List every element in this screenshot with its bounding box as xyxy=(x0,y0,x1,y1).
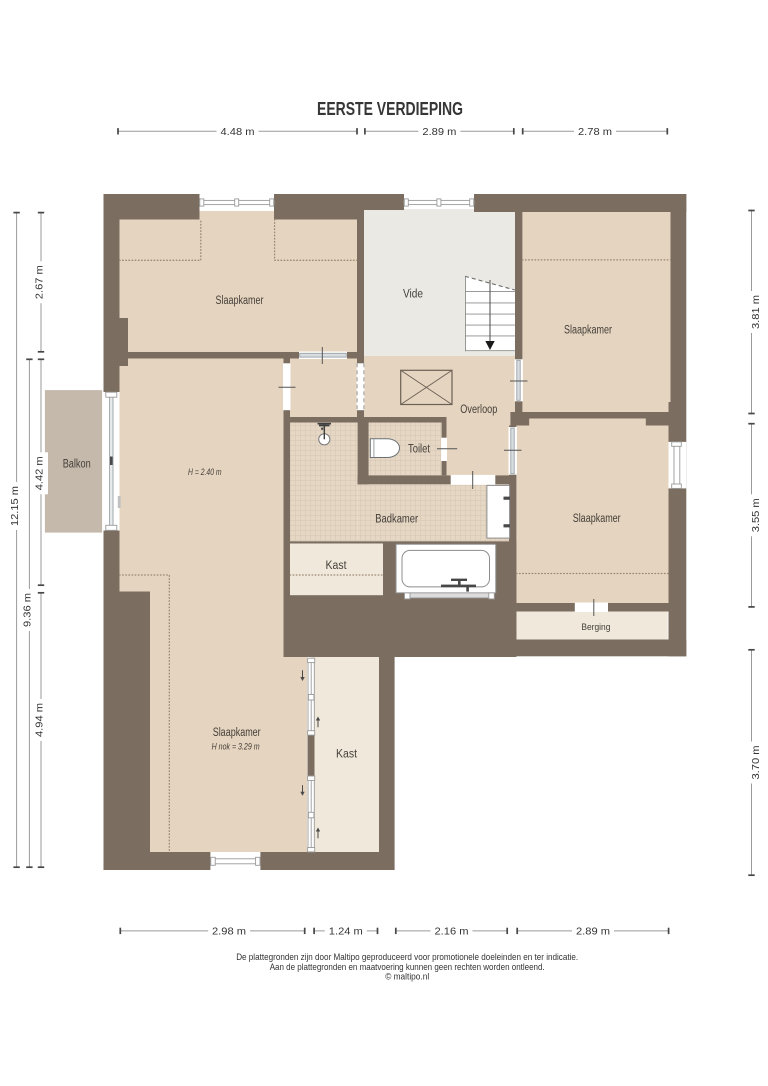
svg-text:2.16 m: 2.16 m xyxy=(435,926,469,938)
svg-text:3.81 m: 3.81 m xyxy=(750,295,762,329)
svg-text:2.98 m: 2.98 m xyxy=(212,926,246,938)
svg-text:1.24 m: 1.24 m xyxy=(329,926,363,938)
svg-text:Badkamer: Badkamer xyxy=(375,514,418,526)
svg-text:2.67 m: 2.67 m xyxy=(33,265,45,299)
svg-text:4.48 m: 4.48 m xyxy=(221,126,255,138)
svg-text:Vide: Vide xyxy=(403,289,423,301)
svg-text:Toilet: Toilet xyxy=(408,444,431,456)
svg-text:Slaapkamer: Slaapkamer xyxy=(213,727,261,739)
svg-text:3.55 m: 3.55 m xyxy=(750,498,762,532)
svg-text:Berging: Berging xyxy=(581,622,610,632)
svg-text:Kast: Kast xyxy=(326,560,348,572)
svg-text:Slaapkamer: Slaapkamer xyxy=(564,325,612,337)
svg-text:2.89 m: 2.89 m xyxy=(576,926,610,938)
svg-text:12.15 m: 12.15 m xyxy=(9,486,21,526)
svg-text:Aan de plattegronden en maatvo: Aan de plattegronden en maatvoering kunn… xyxy=(270,962,545,972)
svg-text:Balkon: Balkon xyxy=(63,459,91,471)
svg-text:Kast: Kast xyxy=(336,749,358,761)
svg-text:2.89 m: 2.89 m xyxy=(422,126,456,138)
svg-text:H nok = 3.29 m: H nok = 3.29 m xyxy=(212,742,260,752)
svg-text:4.42 m: 4.42 m xyxy=(33,456,45,490)
svg-text:EERSTE VERDIEPING: EERSTE VERDIEPING xyxy=(317,99,463,119)
svg-text:3.70 m: 3.70 m xyxy=(750,745,762,779)
svg-text:H = 2.40 m: H = 2.40 m xyxy=(188,467,222,477)
svg-text:2.78 m: 2.78 m xyxy=(578,126,612,138)
svg-text:De plattegronden zijn door Mal: De plattegronden zijn door Maltipo gepro… xyxy=(236,952,578,962)
svg-text:Overloop: Overloop xyxy=(460,404,497,416)
svg-text:Slaapkamer: Slaapkamer xyxy=(573,513,621,525)
svg-text:4.94 m: 4.94 m xyxy=(33,703,45,737)
svg-text:© maltipo.nl: © maltipo.nl xyxy=(385,972,429,982)
svg-text:9.36 m: 9.36 m xyxy=(22,593,34,627)
svg-text:Slaapkamer: Slaapkamer xyxy=(216,295,264,307)
